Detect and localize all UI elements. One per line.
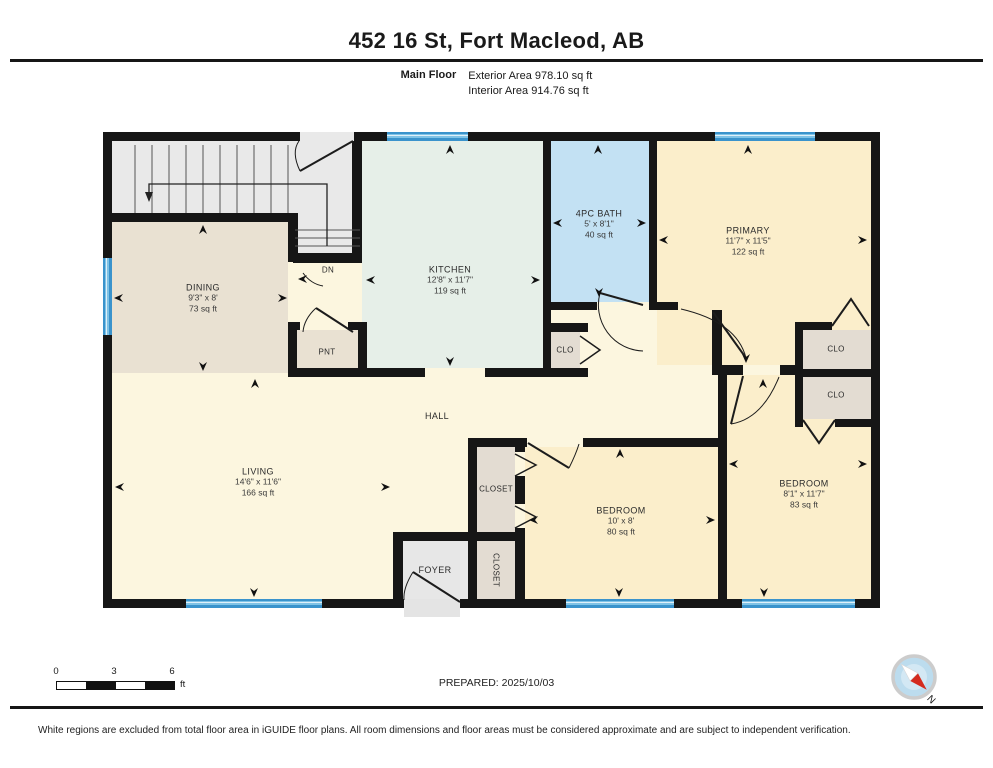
wall bbox=[352, 140, 362, 263]
window bbox=[566, 599, 674, 608]
wall bbox=[780, 365, 795, 375]
prepared-date: PREPARED: 2025/10/03 bbox=[0, 677, 993, 689]
wall bbox=[795, 369, 871, 377]
window bbox=[387, 132, 468, 141]
interior-area: Interior Area 914.76 sq ft bbox=[468, 84, 592, 99]
header-divider bbox=[10, 59, 983, 62]
wall bbox=[288, 368, 367, 377]
wall bbox=[515, 476, 525, 504]
wall bbox=[657, 302, 678, 310]
wall bbox=[288, 322, 300, 330]
wall bbox=[468, 438, 477, 599]
wall bbox=[288, 222, 298, 262]
room-label-dining: DINING 9'3" x 8' 73 sq ft bbox=[186, 283, 220, 314]
page-title: 452 16 St, Fort Macleod, AB bbox=[0, 28, 993, 54]
room-label-hall: HALL bbox=[425, 411, 449, 421]
stairs-down-label: DN bbox=[322, 266, 334, 275]
wall bbox=[835, 419, 871, 427]
scale-tick-3: 3 bbox=[111, 666, 116, 677]
scale-tick-6: 6 bbox=[169, 666, 174, 677]
window bbox=[715, 132, 815, 141]
wall bbox=[362, 368, 425, 377]
wall bbox=[485, 368, 543, 377]
room-label-bath: 4PC BATH 5' x 8'1" 40 sq ft bbox=[576, 209, 623, 240]
wall bbox=[795, 322, 832, 330]
exterior-area: Exterior Area 978.10 sq ft bbox=[468, 69, 592, 84]
wall bbox=[543, 140, 551, 377]
room-label-clo-primary: CLO bbox=[827, 345, 844, 354]
room-label-primary: PRIMARY 11'7" x 11'5" 122 sq ft bbox=[725, 226, 770, 257]
room-label-bedroom2: BEDROOM 8'1" x 11'7" 83 sq ft bbox=[779, 479, 828, 510]
wall bbox=[293, 253, 362, 263]
floor-label: Main Floor bbox=[401, 69, 457, 99]
wall bbox=[551, 302, 597, 310]
wall bbox=[649, 140, 657, 310]
window bbox=[742, 599, 855, 608]
room-label-clo-bedroom2: CLO bbox=[827, 391, 844, 400]
room-label-bedroom1: BEDROOM 10' x 8' 80 sq ft bbox=[596, 506, 645, 537]
room-label-living: LIVING 14'6" x 11'6" 166 sq ft bbox=[235, 467, 281, 498]
room-kitchen bbox=[362, 141, 543, 368]
floor-summary: Main Floor Exterior Area 978.10 sq ft In… bbox=[0, 69, 993, 99]
wall bbox=[712, 365, 743, 375]
footer-divider bbox=[10, 706, 983, 709]
room-stairs bbox=[110, 140, 362, 222]
front-door-stoop bbox=[404, 599, 460, 617]
wall bbox=[718, 375, 727, 599]
wall bbox=[583, 438, 718, 447]
wall bbox=[515, 438, 525, 452]
room-label-kitchen: KITCHEN 12'8" x 11'7" 119 sq ft bbox=[427, 265, 473, 296]
wall bbox=[393, 532, 477, 541]
wall bbox=[393, 532, 403, 599]
wall-outer-right bbox=[871, 132, 880, 608]
floorplan: DINING 9'3" x 8' 73 sq ft KITCHEN 12'8" … bbox=[103, 132, 880, 608]
disclaimer-text: White regions are excluded from total fl… bbox=[38, 725, 973, 736]
entry-door-gap bbox=[300, 132, 354, 141]
room-label-closet-foyer: CLOSET bbox=[492, 553, 501, 587]
wall-outer-left bbox=[103, 132, 112, 608]
wall bbox=[110, 213, 298, 222]
wall bbox=[551, 323, 588, 332]
room-label-pantry: PNT bbox=[319, 348, 336, 357]
wall bbox=[551, 368, 588, 377]
room-label-foyer: FOYER bbox=[418, 565, 451, 575]
wall bbox=[795, 419, 803, 427]
window bbox=[186, 599, 322, 608]
room-label-clo-bath: CLO bbox=[556, 346, 573, 355]
window bbox=[103, 258, 112, 335]
compass-icon: N bbox=[886, 650, 942, 706]
room-label-closet-hall: CLOSET bbox=[479, 485, 513, 494]
floorplan-page: 452 16 St, Fort Macleod, AB Main Floor E… bbox=[0, 0, 993, 768]
scale-tick-0: 0 bbox=[53, 666, 58, 677]
